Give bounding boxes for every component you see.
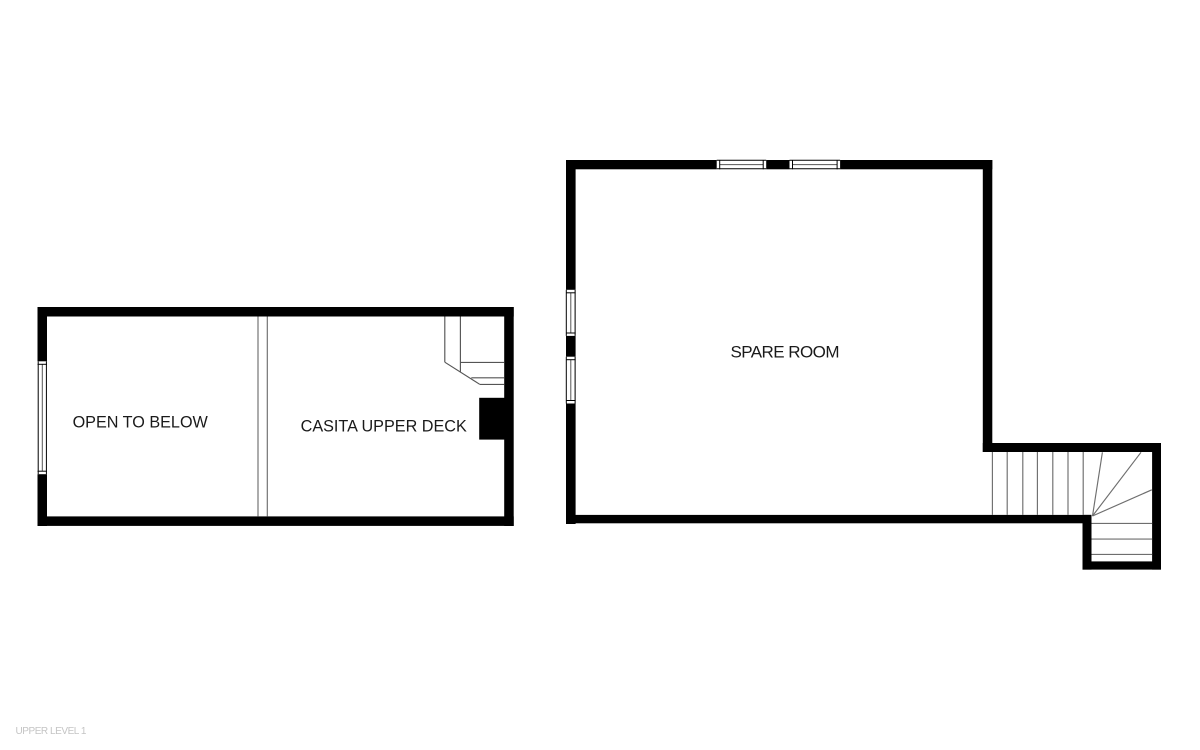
svg-text:UPPER LEVEL 1: UPPER LEVEL 1 xyxy=(16,726,87,737)
svg-text:OPEN TO BELOW: OPEN TO BELOW xyxy=(73,413,209,431)
svg-text:SPARE ROOM: SPARE ROOM xyxy=(730,342,838,361)
svg-text:CASITA UPPER DECK: CASITA UPPER DECK xyxy=(301,417,467,435)
